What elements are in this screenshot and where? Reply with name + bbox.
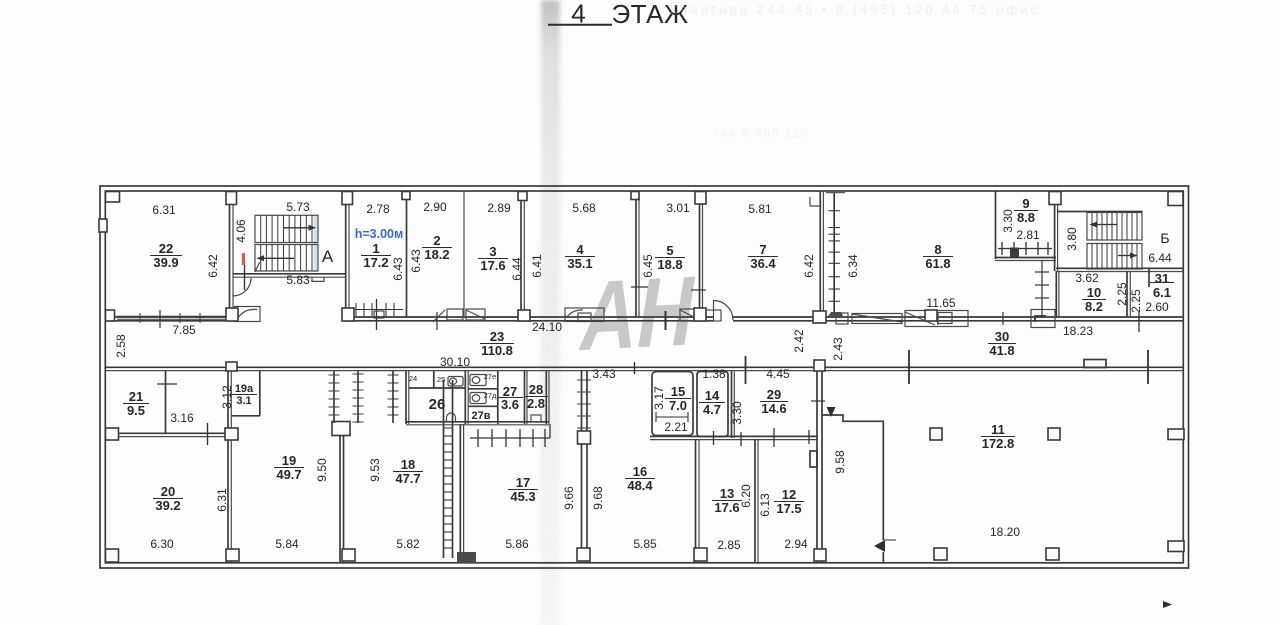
svg-text:2: 2 (433, 233, 440, 248)
svg-text:2.89: 2.89 (487, 201, 511, 215)
svg-text:4.7: 4.7 (703, 402, 721, 417)
svg-text:13: 13 (720, 486, 734, 501)
svg-text:2.81: 2.81 (1016, 228, 1040, 242)
svg-text:Б: Б (1160, 230, 1169, 246)
svg-text:172.8: 172.8 (982, 436, 1015, 451)
svg-text:47.7: 47.7 (395, 471, 420, 486)
svg-text:2.94: 2.94 (784, 537, 808, 551)
svg-text:9: 9 (1022, 196, 1029, 211)
svg-text:28: 28 (529, 382, 543, 397)
svg-text:6.31: 6.31 (215, 488, 229, 512)
svg-text:41.8: 41.8 (989, 343, 1014, 358)
svg-text:61.8: 61.8 (925, 256, 950, 271)
svg-text:2.21: 2.21 (664, 420, 688, 434)
svg-text:24.10: 24.10 (532, 320, 562, 334)
svg-text:3.1: 3.1 (236, 395, 251, 407)
svg-text:25: 25 (437, 375, 445, 384)
svg-text:5: 5 (666, 243, 673, 258)
svg-text:17: 17 (516, 475, 530, 490)
svg-text:24: 24 (409, 374, 417, 383)
svg-text:7: 7 (759, 242, 766, 257)
svg-text:3.62: 3.62 (1075, 271, 1099, 285)
svg-text:48.4: 48.4 (627, 478, 653, 493)
svg-text:30: 30 (995, 329, 1009, 344)
svg-text:Квартира 244-45 • 8 (495) 120: Квартира 244-45 • 8 (495) 120 44 75 офис (670, 2, 1040, 17)
svg-text:3.16: 3.16 (170, 411, 194, 425)
svg-text:2.42: 2.42 (792, 329, 806, 353)
svg-text:17.5: 17.5 (776, 501, 801, 516)
svg-text:3.17: 3.17 (652, 386, 666, 410)
svg-text:6.43: 6.43 (391, 257, 405, 281)
svg-text:тел 8 495 120: тел 8 495 120 (714, 128, 809, 140)
svg-text:6.13: 6.13 (758, 493, 772, 517)
svg-text:2.60: 2.60 (1145, 300, 1169, 314)
svg-text:6.42: 6.42 (802, 254, 816, 278)
svg-text:35.1: 35.1 (567, 256, 592, 271)
svg-text:10: 10 (1087, 285, 1101, 300)
svg-text:2.8: 2.8 (527, 396, 545, 411)
svg-text:7.85: 7.85 (172, 323, 196, 337)
svg-text:26: 26 (429, 396, 446, 413)
svg-text:2.90: 2.90 (423, 200, 447, 214)
svg-text:8.8: 8.8 (1017, 210, 1035, 225)
svg-text:3.80: 3.80 (1065, 227, 1079, 251)
svg-text:3.6: 3.6 (501, 397, 519, 412)
svg-text:22: 22 (159, 241, 173, 256)
svg-text:17.6: 17.6 (480, 258, 505, 273)
svg-text:6.1: 6.1 (1153, 285, 1171, 300)
svg-text:29: 29 (767, 387, 781, 402)
svg-text:9.58: 9.58 (833, 450, 847, 474)
svg-text:6.44: 6.44 (1148, 251, 1172, 265)
svg-text:15: 15 (671, 384, 685, 399)
svg-text:17.2: 17.2 (363, 255, 388, 270)
svg-text:2.25: 2.25 (1115, 282, 1129, 306)
svg-text:4.06: 4.06 (234, 219, 248, 243)
svg-text:2.78: 2.78 (366, 202, 390, 216)
svg-text:1.38: 1.38 (702, 367, 726, 381)
svg-text:9.53: 9.53 (368, 458, 382, 482)
svg-text:14.6: 14.6 (761, 401, 786, 416)
svg-text:14: 14 (705, 388, 720, 403)
svg-text:3.30: 3.30 (730, 401, 744, 425)
svg-text:11: 11 (991, 422, 1005, 437)
svg-text:7.0: 7.0 (669, 398, 687, 413)
svg-text:18.20: 18.20 (990, 525, 1020, 539)
svg-text:h=3.00м: h=3.00м (355, 227, 404, 241)
svg-text:11.65: 11.65 (926, 296, 955, 310)
svg-text:2.43: 2.43 (831, 337, 845, 361)
svg-text:39.2: 39.2 (155, 498, 180, 513)
svg-text:21: 21 (129, 389, 143, 404)
svg-text:9.50: 9.50 (315, 458, 329, 482)
svg-text:3.30: 3.30 (1001, 209, 1015, 233)
svg-text:8: 8 (934, 242, 941, 257)
svg-text:31: 31 (1155, 271, 1169, 286)
svg-text:6.34: 6.34 (846, 254, 860, 278)
svg-text:6.30: 6.30 (150, 537, 174, 551)
svg-text:6.31: 6.31 (152, 203, 176, 217)
svg-text:19: 19 (282, 453, 296, 468)
svg-text:5.86: 5.86 (505, 537, 529, 551)
svg-text:18: 18 (401, 457, 415, 472)
svg-text:18.8: 18.8 (657, 257, 682, 272)
svg-text:36.4: 36.4 (750, 256, 776, 271)
svg-text:2.85: 2.85 (717, 538, 741, 552)
svg-text:27в: 27в (472, 410, 491, 422)
svg-text:8.2: 8.2 (1085, 299, 1103, 314)
svg-text:6.41: 6.41 (530, 254, 544, 278)
svg-text:6.45: 6.45 (641, 254, 655, 278)
svg-text:АН: АН (573, 256, 703, 372)
svg-text:3.01: 3.01 (666, 201, 690, 215)
svg-text:18.2: 18.2 (424, 247, 449, 262)
svg-text:19а: 19а (235, 383, 254, 395)
svg-text:110.8: 110.8 (481, 343, 513, 358)
svg-text:45.3: 45.3 (510, 489, 535, 504)
svg-text:5.84: 5.84 (275, 537, 299, 551)
svg-text:49.7: 49.7 (276, 467, 301, 482)
svg-text:6.44: 6.44 (510, 257, 524, 281)
svg-text:39.9: 39.9 (153, 255, 178, 270)
svg-text:27е: 27е (484, 372, 497, 381)
svg-text:3.12: 3.12 (220, 385, 234, 409)
svg-text:А: А (322, 247, 334, 266)
svg-text:16: 16 (633, 464, 647, 479)
svg-text:30.10: 30.10 (440, 355, 470, 369)
svg-text:3: 3 (489, 244, 496, 259)
svg-text:4: 4 (576, 242, 584, 257)
svg-text:2.58: 2.58 (114, 334, 128, 358)
svg-text:27д: 27д (484, 391, 497, 400)
svg-text:17.6: 17.6 (714, 500, 739, 515)
svg-text:5.83: 5.83 (286, 273, 310, 287)
svg-text:9.68: 9.68 (591, 486, 605, 510)
svg-text:5.73: 5.73 (286, 200, 310, 214)
svg-text:9.66: 9.66 (562, 486, 576, 510)
svg-text:18.23: 18.23 (1063, 324, 1093, 338)
svg-text:6.20: 6.20 (739, 484, 753, 508)
svg-text:5.68: 5.68 (572, 201, 596, 215)
svg-text:3.43: 3.43 (592, 367, 616, 381)
svg-text:12: 12 (782, 487, 796, 502)
svg-text:4.45: 4.45 (766, 367, 790, 381)
svg-text:5.82: 5.82 (396, 537, 420, 551)
svg-text:6.42: 6.42 (206, 254, 220, 278)
svg-text:9.5: 9.5 (127, 403, 145, 418)
svg-text:6.43: 6.43 (409, 249, 423, 273)
svg-text:5.85: 5.85 (633, 537, 657, 551)
svg-text:5.81: 5.81 (748, 202, 772, 216)
svg-text:20: 20 (161, 484, 175, 499)
svg-text:23: 23 (490, 329, 504, 344)
svg-text:2.25: 2.25 (1129, 289, 1143, 313)
svg-text:1: 1 (372, 241, 379, 256)
